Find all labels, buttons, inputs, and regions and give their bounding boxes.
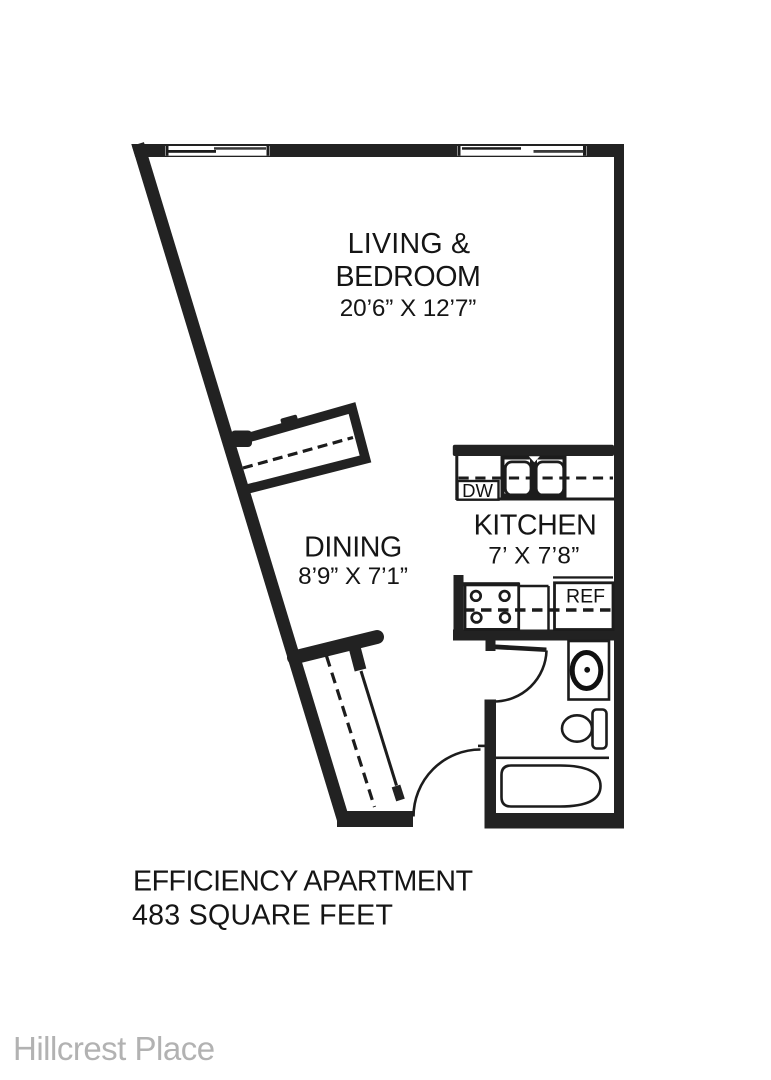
svg-text:Hillcrest Place: Hillcrest Place [13, 1030, 215, 1067]
svg-text:KITCHEN: KITCHEN [474, 510, 597, 542]
svg-text:DINING: DINING [304, 532, 402, 564]
svg-text:LIVING &: LIVING & [348, 228, 471, 260]
svg-text:BEDROOM: BEDROOM [336, 261, 481, 293]
svg-text:8’9” X 7’1”: 8’9” X 7’1” [298, 563, 408, 590]
svg-text:7’ X 7’8”: 7’ X 7’8” [488, 543, 579, 570]
svg-text:DW: DW [462, 480, 493, 501]
svg-text:483 SQUARE FEET: 483 SQUARE FEET [132, 900, 393, 932]
svg-text:20’6” X 12’7”: 20’6” X 12’7” [340, 295, 476, 322]
svg-text:EFFICIENCY APARTMENT: EFFICIENCY APARTMENT [133, 866, 473, 898]
svg-text:REF: REF [566, 586, 605, 608]
